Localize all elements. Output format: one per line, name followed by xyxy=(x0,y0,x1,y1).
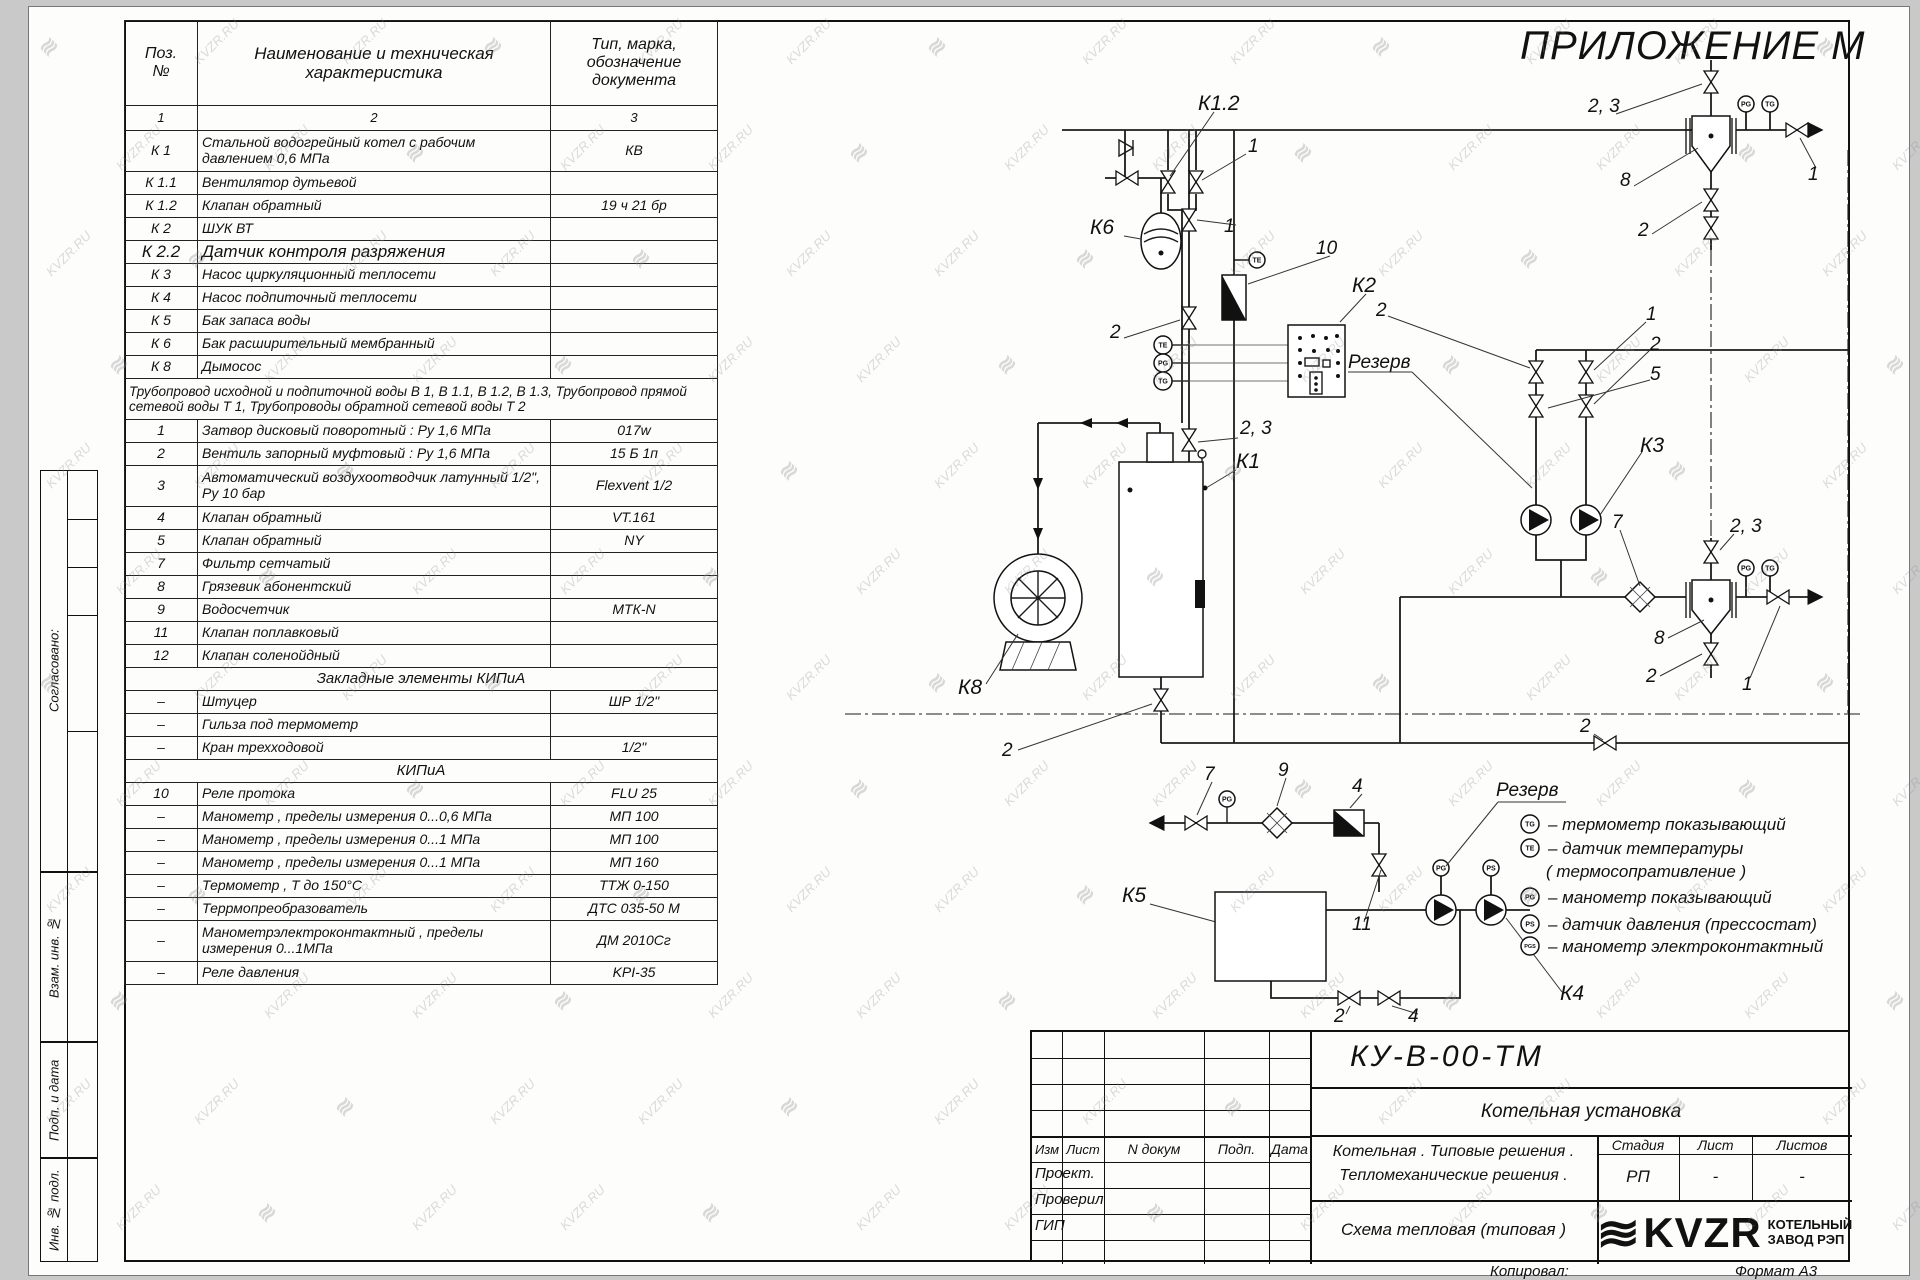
side-divider xyxy=(67,873,68,1041)
side-label-vzam: Взам. инв. № xyxy=(41,873,67,1041)
label-2: 2 xyxy=(1637,220,1649,241)
spec-cell-type xyxy=(551,333,718,356)
spec-cell-type: ТТЖ 0-150 xyxy=(551,875,718,898)
label-k6: К6 xyxy=(1090,216,1114,239)
spec-section-cell: Закладные элементы КИПиА xyxy=(125,668,718,691)
pressure-switch-icon: PS xyxy=(1521,915,1539,933)
spec-cell-type: КВ xyxy=(551,131,718,172)
label-k3: К3 xyxy=(1640,434,1664,457)
valve-icon xyxy=(1704,643,1718,665)
spec-row: –Кран трехходовой1/2" xyxy=(125,737,718,760)
spec-cell-pos: – xyxy=(125,852,198,875)
flow-relay-icon xyxy=(1222,275,1246,320)
spec-cell-name: Водосчетчик xyxy=(198,599,551,622)
spec-row: К 2ШУК ВТ xyxy=(125,218,718,241)
scheme-name: Схема тепловая (типовая ) xyxy=(1316,1217,1591,1243)
spec-cell-pos: – xyxy=(125,806,198,829)
title-block-line xyxy=(1032,1084,1310,1085)
label-7: 7 xyxy=(1612,512,1624,533)
spec-row: –Манометрэлектроконтактный , пределы изм… xyxy=(125,921,718,962)
svg-text:PG: PG xyxy=(1741,102,1752,109)
spec-cell-pos: 11 xyxy=(125,622,198,645)
spec-table: Поз. № Наименование и техническая характ… xyxy=(124,20,718,985)
spec-header-name: Наименование и техническая характеристик… xyxy=(198,21,551,106)
col-ndoc: N докум xyxy=(1104,1136,1204,1162)
spec-cell-name: Дымосос xyxy=(198,356,551,379)
thermometer-gauge-icon: TG xyxy=(1521,815,1539,833)
spec-row: К 1.2Клапан обратный19 ч 21 бр xyxy=(125,195,718,218)
flow-arrows xyxy=(1033,418,1128,540)
col-data: Дата xyxy=(1269,1136,1310,1162)
copied-label: Копировал: xyxy=(1490,1263,1569,1280)
spec-row: 9ВодосчетчикМТК-N xyxy=(125,599,718,622)
spec-header-pos: Поз. № xyxy=(125,21,198,106)
appendix-title: ПРИЛОЖЕНИЕ М xyxy=(1520,24,1850,69)
spec-cell-pos: – xyxy=(125,962,198,985)
spec-cell-pos: 8 xyxy=(125,576,198,599)
pressure-gauge-icon: PG xyxy=(1738,96,1754,112)
spec-cell-name: Бак запаса воды xyxy=(198,310,551,333)
side-label-agreed: Согласовано: xyxy=(41,471,67,871)
role-project: Проект. xyxy=(1035,1165,1125,1182)
side-divider xyxy=(67,471,68,871)
contact-gauge-icon: PGS xyxy=(1521,937,1539,955)
spec-cell-name: Штуцер xyxy=(198,691,551,714)
spec-table-body: К 1Стальной водогрейный котел с рабочим … xyxy=(125,131,718,985)
spec-cell-name: Манометрэлектроконтактный , пределы изме… xyxy=(198,921,551,962)
label-2: 2 xyxy=(1579,716,1591,737)
valve-icon xyxy=(1529,361,1543,383)
spec-row: 10Реле протокаFLU 25 xyxy=(125,783,718,806)
spec-cell-type xyxy=(551,553,718,576)
title-block-line xyxy=(1032,1058,1310,1059)
spec-cell-type xyxy=(551,622,718,645)
company-line2: ЗАВОД РЭП xyxy=(1768,1232,1845,1247)
label-1: 1 xyxy=(1646,304,1657,325)
label-2-3: 2, 3 xyxy=(1729,516,1762,537)
object-name: Котельная установка xyxy=(1310,1089,1852,1135)
label-1: 1 xyxy=(1808,164,1819,185)
label-2: 2 xyxy=(1375,300,1387,321)
svg-text:TE: TE xyxy=(1253,258,1262,265)
label-k2: К2 xyxy=(1352,274,1376,297)
valve-icon xyxy=(1154,689,1168,711)
spec-cell-name: Реле давления xyxy=(198,962,551,985)
storage-tank-icon xyxy=(1215,892,1326,981)
svg-text:TG: TG xyxy=(1525,822,1535,829)
spec-cell-type: Flexvent 1/2 xyxy=(551,466,718,507)
spec-cell-type: FLU 25 xyxy=(551,783,718,806)
kvzr-logo-word: KVZR xyxy=(1643,1209,1761,1257)
spec-cell-pos: – xyxy=(125,691,198,714)
spec-row: –ШтуцерШР 1/2" xyxy=(125,691,718,714)
spec-cell-name: Клапан поплавковый xyxy=(198,622,551,645)
label-2-3: 2, 3 xyxy=(1239,418,1272,439)
sheet-value: - xyxy=(1679,1154,1752,1200)
spec-cell-type: 1/2" xyxy=(551,737,718,760)
fan-icon xyxy=(994,554,1082,670)
spec-note-row: Трубопровод исходной и подпиточной воды … xyxy=(125,379,718,420)
spec-cell-type xyxy=(551,264,718,287)
label-10: 10 xyxy=(1316,238,1338,259)
valve-icon xyxy=(1579,361,1593,383)
spec-row: –Термометр , Т до 150°СТТЖ 0-150 xyxy=(125,875,718,898)
label-8: 8 xyxy=(1654,628,1665,649)
spec-cell-name: Реле протока xyxy=(198,783,551,806)
side-label-podp: Подп. и дата xyxy=(41,1043,67,1157)
spec-cell-name: Манометр , пределы измерения 0...1 МПа xyxy=(198,852,551,875)
title-block-line xyxy=(1310,1200,1599,1202)
company-line1: КОТЕЛЬНЫЙ xyxy=(1768,1217,1853,1232)
spec-cell-name: Клапан обратный xyxy=(198,530,551,553)
spec-row: 12Клапан соленойдный xyxy=(125,645,718,668)
side-label-inv: Инв. № подл. xyxy=(41,1159,67,1261)
title-block-line xyxy=(1032,1162,1310,1163)
spec-cell-pos: 2 xyxy=(125,443,198,466)
temp-sensor-icon: TE xyxy=(1521,839,1539,857)
valve-icon xyxy=(1116,171,1138,185)
spec-cell-name: Грязевик абонентский xyxy=(198,576,551,599)
legend-item-text: – термометр показывающий xyxy=(1547,815,1786,834)
side-strip-agreed: Согласовано: xyxy=(40,470,98,872)
label-2: 2 xyxy=(1645,666,1657,687)
legend-item-text: – манометр показывающий xyxy=(1547,888,1772,907)
desc-line1: Котельная . Типовые решения . xyxy=(1316,1140,1591,1164)
valve-icon xyxy=(1189,171,1203,193)
spec-cell-pos: К 1 xyxy=(125,131,198,172)
side-tick xyxy=(67,519,98,520)
spec-colnum-3: 3 xyxy=(551,106,718,131)
spec-cell-name: Насос циркуляционный теплосети xyxy=(198,264,551,287)
spec-cell-type: 19 ч 21 бр xyxy=(551,195,718,218)
svg-text:TG: TG xyxy=(1158,379,1168,386)
spec-cell-pos: 9 xyxy=(125,599,198,622)
spec-cell-type xyxy=(551,218,718,241)
spec-cell-type: 017w xyxy=(551,420,718,443)
svg-text:TE: TE xyxy=(1159,343,1168,350)
spec-row: –Гильза под термометр xyxy=(125,714,718,737)
spec-colnum-row: 1 2 3 xyxy=(125,106,718,131)
spec-section-row: КИПиА xyxy=(125,760,718,783)
spec-row: –Манометр , пределы измерения 0...0,6 МП… xyxy=(125,806,718,829)
spec-cell-pos: К 6 xyxy=(125,333,198,356)
float-valve-icon xyxy=(1372,854,1386,876)
side-tick xyxy=(67,615,98,616)
spec-cell-type: МП 100 xyxy=(551,829,718,852)
temp-sensor-icon: TE xyxy=(1154,336,1172,354)
stage-label: Стадия xyxy=(1597,1135,1679,1154)
spec-cell-pos: К 1.1 xyxy=(125,172,198,195)
pressure-gauge-icon: PG xyxy=(1738,560,1754,576)
spec-row: 3Автоматический воздухоотводчик латунный… xyxy=(125,466,718,507)
label-k12: К1.2 xyxy=(1198,92,1240,115)
valve-icon xyxy=(1767,590,1789,604)
pump-icon xyxy=(1521,505,1601,535)
side-tick xyxy=(67,731,98,732)
valve-icon xyxy=(1338,991,1360,1005)
spec-cell-name: Термометр , Т до 150°С xyxy=(198,875,551,898)
spec-row: –Манометр , пределы измерения 0...1 МПаМ… xyxy=(125,829,718,852)
valve-icon xyxy=(1579,395,1593,417)
thermometer-gauge-icon: TG xyxy=(1762,96,1778,112)
valve-icon xyxy=(1529,395,1543,417)
spec-cell-type xyxy=(551,310,718,333)
label-1: 1 xyxy=(1248,136,1259,157)
spec-row: –Реле давленияKPI-35 xyxy=(125,962,718,985)
legend-item-text: – датчик температуры xyxy=(1547,839,1744,858)
pressure-switch-icon: PS xyxy=(1483,860,1499,876)
control-panel-icon xyxy=(1288,325,1345,397)
col-podp: Подп. xyxy=(1204,1136,1269,1162)
spec-cell-pos: К 3 xyxy=(125,264,198,287)
spec-cell-pos: – xyxy=(125,875,198,898)
spec-cell-name: Клапан обратный xyxy=(198,195,551,218)
dirt-separator-icon xyxy=(1686,116,1736,172)
role-gip: ГИП xyxy=(1035,1217,1125,1234)
spec-cell-type: ДМ 2010Сг xyxy=(551,921,718,962)
title-block: Изм Лист N докум Подп. Дата Проект. Пров… xyxy=(1030,1030,1850,1262)
title-block-line xyxy=(1032,1214,1310,1215)
spec-section-cell: КИПиА xyxy=(125,760,718,783)
valve-icon xyxy=(1786,123,1808,137)
spec-header-row: Поз. № Наименование и техническая характ… xyxy=(125,21,718,106)
spec-cell-type: 15 Б 1п xyxy=(551,443,718,466)
spec-row: К 5Бак запаса воды xyxy=(125,310,718,333)
side-divider xyxy=(67,1043,68,1157)
valve-icon xyxy=(1185,816,1207,830)
spec-cell-name: ШУК ВТ xyxy=(198,218,551,241)
spec-row: К 6Бак расширительный мембранный xyxy=(125,333,718,356)
valve-icon xyxy=(1704,71,1718,93)
format-note: Формат А3 xyxy=(1735,1263,1817,1280)
label-k8: К8 xyxy=(958,676,982,699)
spec-cell-name: Гильза под термометр xyxy=(198,714,551,737)
side-strip-vzam: Взам. инв. № xyxy=(40,872,98,1042)
side-tick xyxy=(67,567,98,568)
check-valve-wedge-icon xyxy=(1334,810,1364,836)
spec-cell-type xyxy=(551,356,718,379)
spec-row: 5Клапан обратныйNY xyxy=(125,530,718,553)
svg-text:PG: PG xyxy=(1741,566,1752,573)
spec-cell-type: МТК-N xyxy=(551,599,718,622)
label-2-3: 2, 3 xyxy=(1587,96,1620,117)
svg-text:TG: TG xyxy=(1765,566,1775,573)
spec-colnum-1: 1 xyxy=(125,106,198,131)
spec-colnum-2: 2 xyxy=(198,106,551,131)
legend-item-text: – датчик давления (прессостат) xyxy=(1547,915,1817,934)
spec-cell-name: Клапан обратный xyxy=(198,507,551,530)
spec-row: 11Клапан поплавковый xyxy=(125,622,718,645)
spec-row: 8Грязевик абонентский xyxy=(125,576,718,599)
spec-cell-pos: – xyxy=(125,898,198,921)
spec-section-row: Закладные элементы КИПиА xyxy=(125,668,718,691)
valve-icon xyxy=(1182,429,1196,451)
kvzr-logo-icon: ≋ xyxy=(1596,1210,1640,1256)
title-block-line xyxy=(1032,1188,1310,1189)
spec-row: К 1.1Вентилятор дутьевой xyxy=(125,172,718,195)
sheets-label: Листов xyxy=(1752,1135,1852,1154)
label-9: 9 xyxy=(1278,760,1289,781)
col-list: Лист xyxy=(1062,1136,1104,1162)
valve-icon xyxy=(1161,171,1175,193)
spec-cell-type: МП 160 xyxy=(551,852,718,875)
spec-cell-type xyxy=(551,172,718,195)
svg-text:PG: PG xyxy=(1436,866,1447,873)
spec-cell-type: VT.161 xyxy=(551,507,718,530)
company-name: КОТЕЛЬНЫЙ ЗАВОД РЭП xyxy=(1768,1218,1853,1248)
title-block-line xyxy=(1310,1032,1312,1264)
spec-cell-pos: 12 xyxy=(125,645,198,668)
label-k1: К1 xyxy=(1236,450,1260,473)
svg-text:PG: PG xyxy=(1222,797,1233,804)
spec-cell-name: Кран трехходовой xyxy=(198,737,551,760)
spec-cell-name: Вентилятор дутьевой xyxy=(198,172,551,195)
valve-icon xyxy=(1704,189,1718,211)
valve-icon xyxy=(1704,217,1718,239)
thermometer-gauge-icon: TG xyxy=(1154,372,1172,390)
spec-cell-pos: – xyxy=(125,737,198,760)
boiler-piping-diagram: PG TG TE PG TG TE PG PG TG PG PS xyxy=(700,20,1900,1030)
spec-cell-pos: 4 xyxy=(125,507,198,530)
spec-cell-type xyxy=(551,645,718,668)
label-k4: К4 xyxy=(1560,982,1584,1005)
spec-cell-name: Датчик контроля разряжения xyxy=(198,241,551,264)
label-2: 2 xyxy=(1649,334,1661,355)
spec-cell-name: Манометр , пределы измерения 0...1 МПа xyxy=(198,829,551,852)
label-8: 8 xyxy=(1620,170,1631,191)
strainer-icon xyxy=(1625,582,1655,612)
spec-cell-type: МП 100 xyxy=(551,806,718,829)
label-2: 2 xyxy=(1333,1006,1345,1027)
svg-text:PG: PG xyxy=(1158,361,1169,368)
spec-cell-type: ШР 1/2" xyxy=(551,691,718,714)
spec-row: 4Клапан обратныйVT.161 xyxy=(125,507,718,530)
valve-icon xyxy=(1378,991,1400,1005)
dirt-separator-icon xyxy=(1686,580,1736,634)
boiler-icon xyxy=(1119,433,1206,677)
title-block-line xyxy=(1032,1240,1310,1241)
spec-row: 7Фильтр сетчатый xyxy=(125,553,718,576)
spec-cell-type xyxy=(551,241,718,264)
spec-cell-name: Стальной водогрейный котел с рабочим дав… xyxy=(198,131,551,172)
spec-cell-pos: 3 xyxy=(125,466,198,507)
spec-cell-pos: К 8 xyxy=(125,356,198,379)
spec-cell-name: Фильтр сетчатый xyxy=(198,553,551,576)
expansion-tank-icon xyxy=(1141,213,1181,269)
label-11: 11 xyxy=(1352,914,1372,935)
thermometer-gauge-icon: TG xyxy=(1762,560,1778,576)
label-2: 2 xyxy=(1001,740,1013,761)
label-2: 2 xyxy=(1109,322,1121,343)
title-block-line xyxy=(1032,1110,1310,1111)
sheet-label: Лист xyxy=(1679,1135,1752,1154)
spec-row: К 1Стальной водогрейный котел с рабочим … xyxy=(125,131,718,172)
spec-cell-name: Насос подпиточный теплосети xyxy=(198,287,551,310)
valve-icon xyxy=(1704,541,1718,563)
spec-row: К 4Насос подпиточный теплосети xyxy=(125,287,718,310)
role-checked: Проверил xyxy=(1035,1191,1125,1208)
spec-cell-pos: 7 xyxy=(125,553,198,576)
legend-item-text: ( термосопративление ) xyxy=(1546,862,1746,881)
svg-text:PS: PS xyxy=(1525,922,1535,929)
label-k5: К5 xyxy=(1122,884,1146,907)
doc-number: КУ-В-00-ТМ xyxy=(1350,1040,1830,1074)
spec-cell-name: Затвор дисковый поворотный : Ру 1,6 МПа xyxy=(198,420,551,443)
valve-icon xyxy=(1182,307,1196,329)
spec-cell-type: ДТС 035-50 М xyxy=(551,898,718,921)
spec-cell-type: NY xyxy=(551,530,718,553)
svg-text:PG: PG xyxy=(1525,895,1536,902)
label-1: 1 xyxy=(1742,674,1753,695)
spec-row: К 8Дымосос xyxy=(125,356,718,379)
spec-cell-name: Террмопреобразователь xyxy=(198,898,551,921)
temp-sensor-icon: TE xyxy=(1249,252,1265,268)
side-strip-podp: Подп. и дата xyxy=(40,1042,98,1158)
label-reserve: Резерв xyxy=(1348,352,1411,373)
sheets-value: - xyxy=(1752,1154,1852,1200)
label-4: 4 xyxy=(1408,1006,1419,1027)
company-logo-box: ≋ KVZR КОТЕЛЬНЫЙ ЗАВОД РЭП xyxy=(1599,1202,1852,1264)
spec-cell-type xyxy=(551,576,718,599)
spec-cell-type: KPI-35 xyxy=(551,962,718,985)
svg-text:PGS: PGS xyxy=(1524,944,1536,950)
spec-cell-type xyxy=(551,287,718,310)
label-5: 5 xyxy=(1650,364,1661,385)
spec-row: –Манометр , пределы измерения 0...1 МПаМ… xyxy=(125,852,718,875)
legend-title: Резерв xyxy=(1496,780,1559,801)
spec-note-cell: Трубопровод исходной и подпиточной воды … xyxy=(125,379,718,420)
check-valve-icon xyxy=(1119,140,1133,156)
legend: Резерв TG – термометр показывающий TE – … xyxy=(1496,780,1824,956)
pressure-gauge-icon: PG xyxy=(1154,354,1172,372)
col-izm: Изм xyxy=(1032,1136,1062,1162)
legend-item-text: – манометр электроконтактный xyxy=(1547,937,1824,956)
spec-cell-pos: 5 xyxy=(125,530,198,553)
spec-row: 2Вентиль запорный муфтовый : Ру 1,6 МПа1… xyxy=(125,443,718,466)
spec-cell-type xyxy=(551,714,718,737)
side-divider xyxy=(67,1159,68,1261)
pressure-gauge-icon: PG xyxy=(1521,888,1539,906)
spec-cell-pos: 1 xyxy=(125,420,198,443)
spec-cell-pos: К 1.2 xyxy=(125,195,198,218)
spec-cell-name: Автоматический воздухоотводчик латунный … xyxy=(198,466,551,507)
spec-cell-pos: К 2 xyxy=(125,218,198,241)
spec-row: –ТеррмопреобразовательДТС 035-50 М xyxy=(125,898,718,921)
spec-cell-name: Клапан соленойдный xyxy=(198,645,551,668)
pressure-gauge-icon: PG xyxy=(1219,791,1235,807)
svg-text:TG: TG xyxy=(1765,102,1775,109)
spec-cell-pos: К 5 xyxy=(125,310,198,333)
label-1: 1 xyxy=(1224,216,1235,237)
label-7: 7 xyxy=(1204,764,1216,785)
spec-cell-pos: – xyxy=(125,829,198,852)
valve-icon xyxy=(1182,209,1196,231)
spec-cell-pos: – xyxy=(125,921,198,962)
position-labels: К1.2 1 К6 1 2 10 К2 2 Резерв 2, 3 К1 2, … xyxy=(958,92,1819,1027)
pressure-gauge-icon: PG xyxy=(1433,860,1449,876)
spec-cell-name: Бак расширительный мембранный xyxy=(198,333,551,356)
spec-cell-name: Вентиль запорный муфтовый : Ру 1,6 МПа xyxy=(198,443,551,466)
spec-cell-pos: – xyxy=(125,714,198,737)
svg-text:PS: PS xyxy=(1486,866,1496,873)
desc-line2: Тепломеханические решения . xyxy=(1316,1164,1591,1188)
side-strip-inv: Инв. № подл. xyxy=(40,1158,98,1262)
spec-row: 1Затвор дисковый поворотный : Ру 1,6 МПа… xyxy=(125,420,718,443)
spec-row: К 3Насос циркуляционный теплосети xyxy=(125,264,718,287)
spec-cell-pos: 10 xyxy=(125,783,198,806)
label-4: 4 xyxy=(1352,776,1363,797)
valve-icon xyxy=(1594,736,1616,750)
